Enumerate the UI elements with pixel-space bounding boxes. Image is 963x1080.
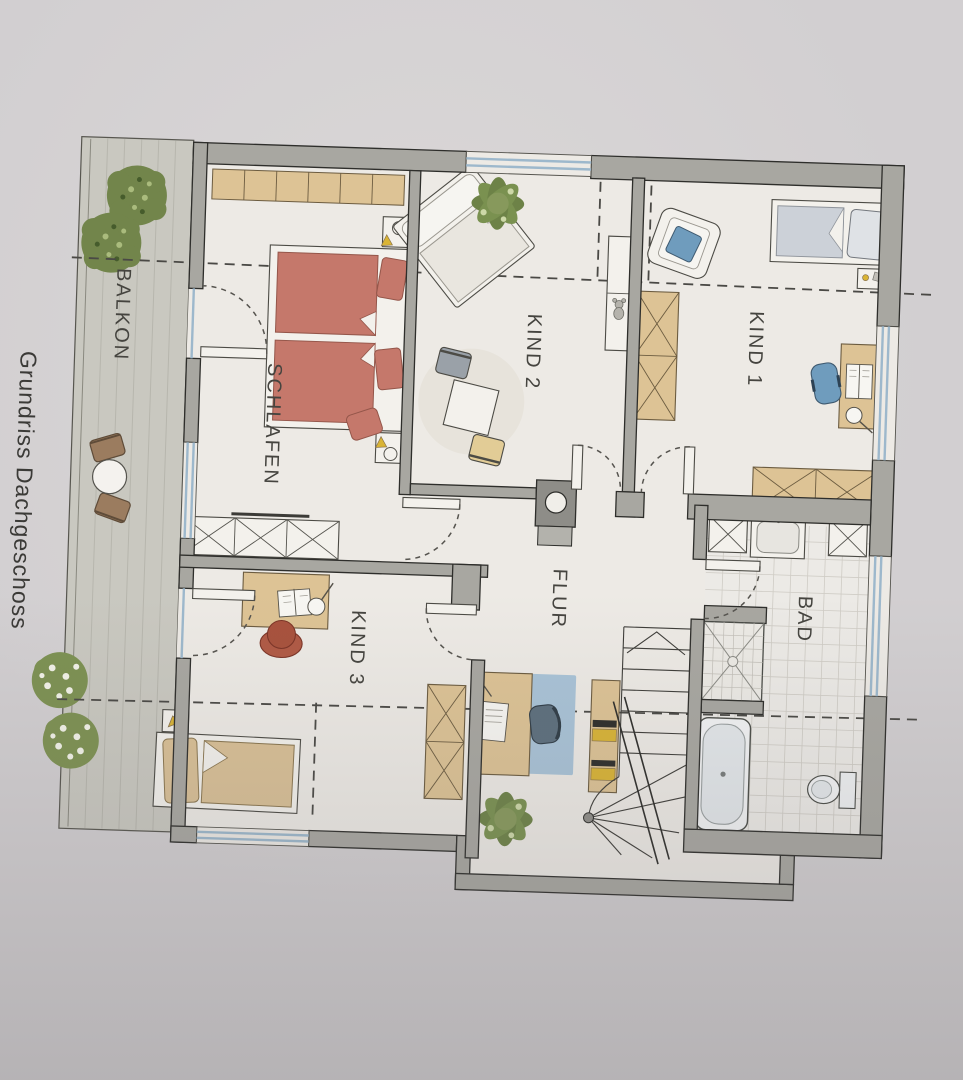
window — [181, 442, 198, 538]
bathroom-label: BAD — [792, 595, 816, 643]
open-book — [277, 588, 312, 618]
stair-post — [583, 813, 593, 823]
child3-label: KIND 3 — [345, 610, 370, 687]
desk-clock — [846, 407, 863, 424]
double-bed — [264, 245, 411, 432]
open-book — [846, 364, 873, 399]
round-table — [92, 459, 127, 494]
bathtub — [695, 717, 751, 831]
bush-plant — [80, 212, 142, 274]
child2-label: KIND 2 — [521, 313, 546, 390]
desk — [242, 572, 334, 629]
wardrobe — [424, 684, 466, 799]
window — [196, 827, 308, 847]
balcony-label: BALKON — [109, 268, 134, 362]
bookshelf — [588, 680, 620, 793]
chimney — [535, 480, 577, 546]
shower — [701, 606, 767, 715]
window — [865, 556, 892, 697]
window — [873, 326, 899, 461]
floor-plan: BALKON — [0, 135, 936, 905]
bedroom-label: SCHLAFEN — [259, 363, 285, 486]
desk-clock — [308, 598, 326, 616]
single-bed — [770, 200, 891, 266]
floorplan-canvas: BALKON — [0, 0, 963, 1080]
desk-chair — [529, 704, 562, 745]
hallway-label: FLUR — [547, 568, 571, 629]
wardrobe — [212, 169, 405, 205]
shower-drain — [728, 656, 738, 666]
child1-label: KIND 1 — [743, 311, 768, 388]
window — [466, 151, 592, 176]
floorplan-photo: BALKON — [0, 0, 963, 1080]
